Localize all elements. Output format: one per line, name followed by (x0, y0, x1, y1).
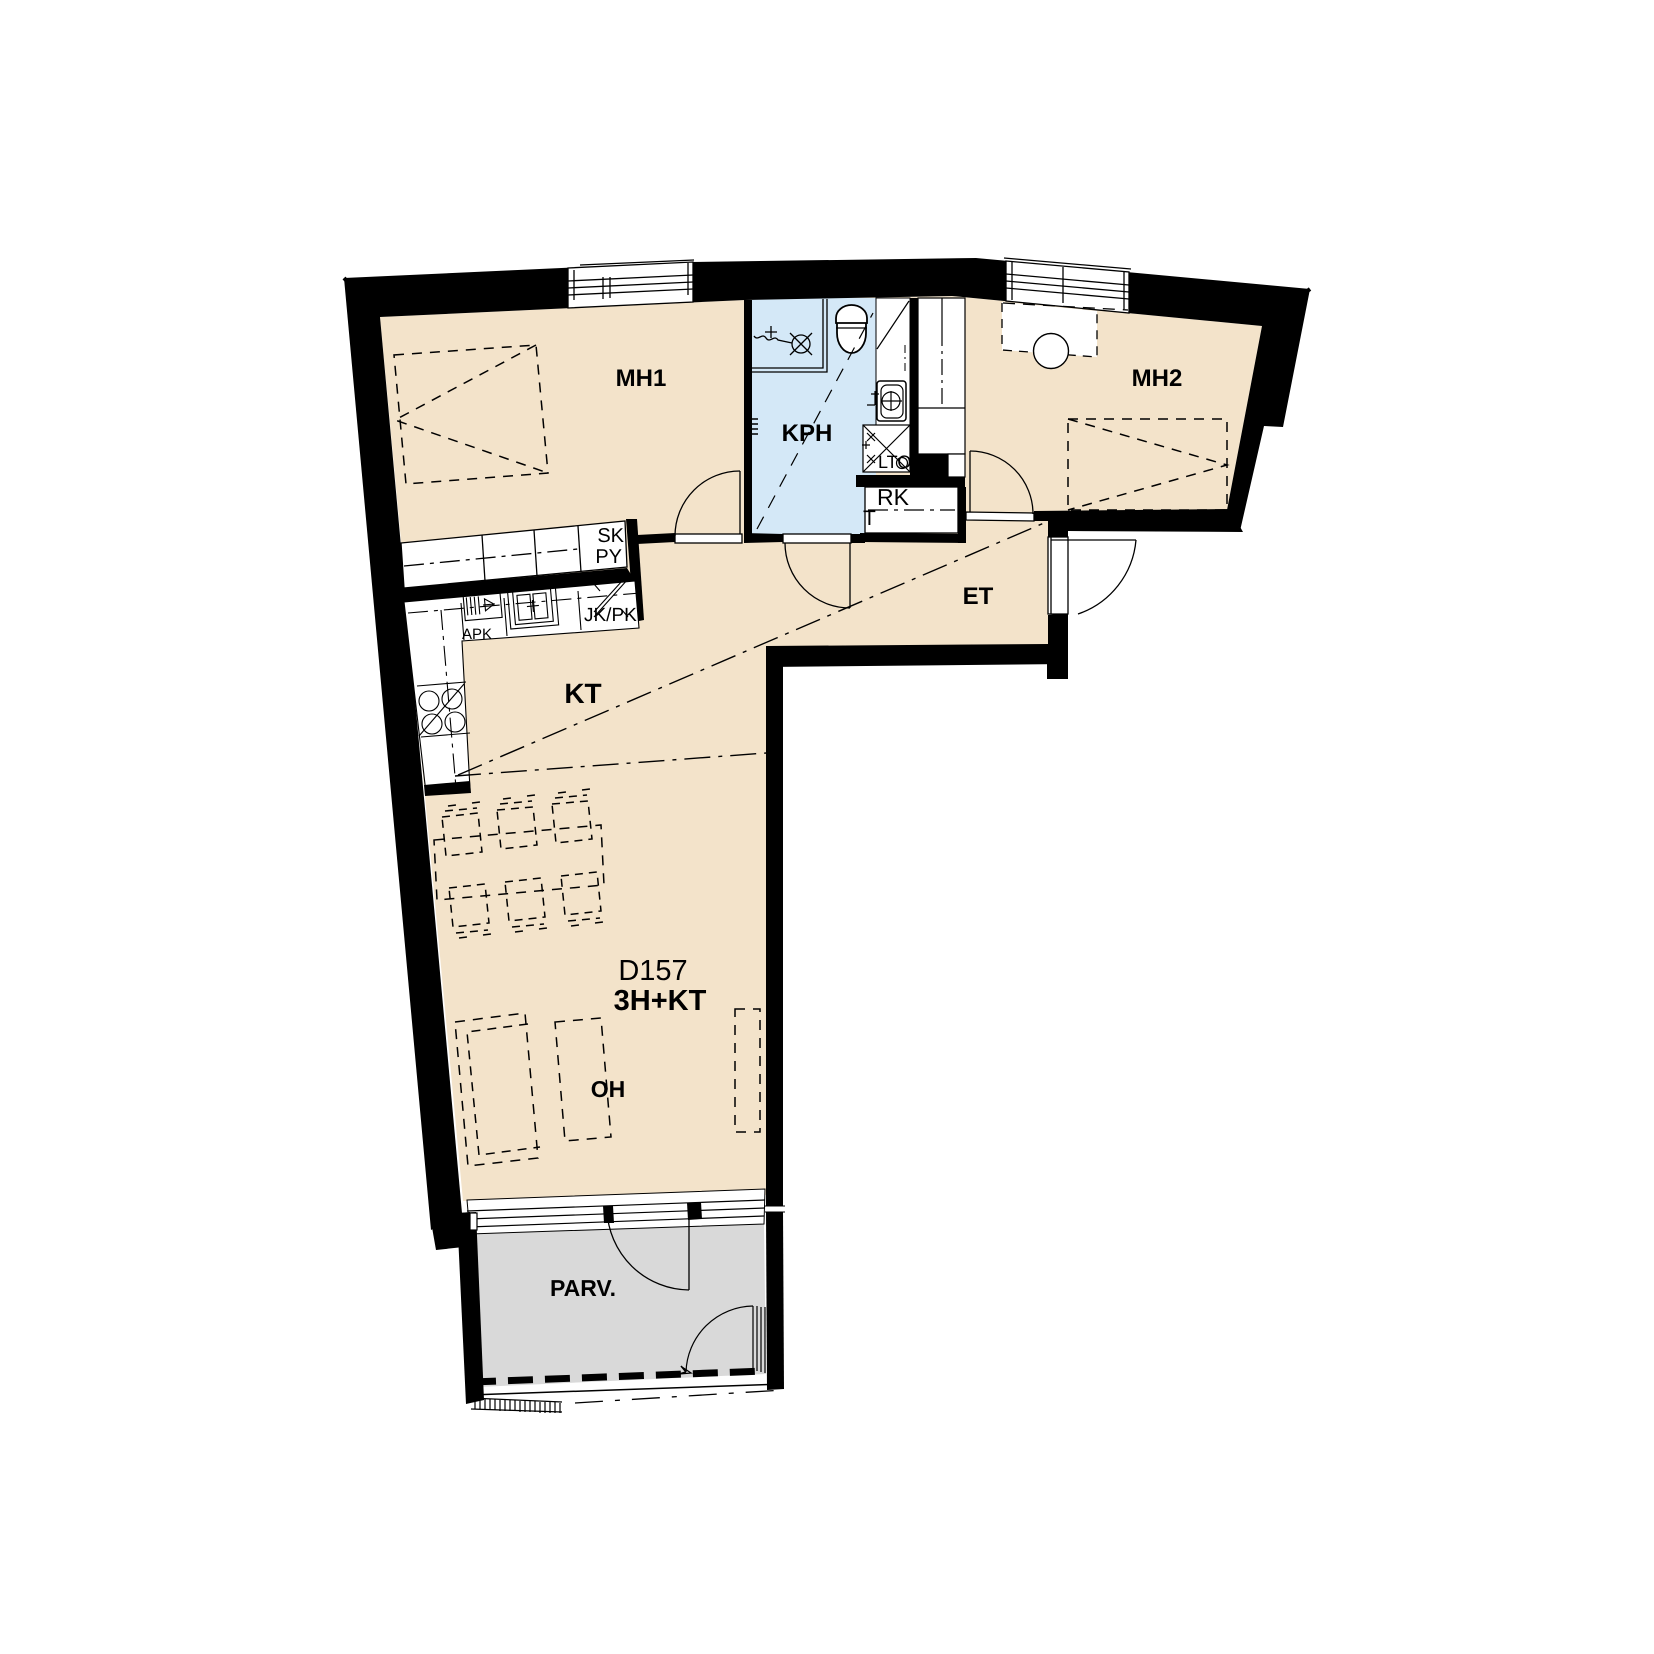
svg-text:KT: KT (564, 678, 601, 709)
svg-text:OH: OH (591, 1076, 626, 1102)
svg-text:T: T (863, 507, 876, 530)
svg-text:KPH: KPH (782, 420, 833, 447)
svg-text:PARV.: PARV. (550, 1275, 616, 1301)
svg-text:D157: D157 (618, 955, 687, 987)
svg-text:LTO: LTO (878, 452, 911, 472)
svg-text:RK: RK (877, 484, 910, 510)
svg-text:PY: PY (595, 546, 622, 568)
svg-text:3H+KT: 3H+KT (614, 985, 707, 1017)
svg-text:APK: APK (462, 626, 492, 643)
svg-text:JK/PK: JK/PK (584, 605, 637, 626)
svg-text:MH1: MH1 (616, 365, 667, 392)
svg-text:SK: SK (597, 525, 624, 547)
svg-text:MH2: MH2 (1132, 365, 1183, 392)
svg-text:ET: ET (963, 583, 994, 610)
